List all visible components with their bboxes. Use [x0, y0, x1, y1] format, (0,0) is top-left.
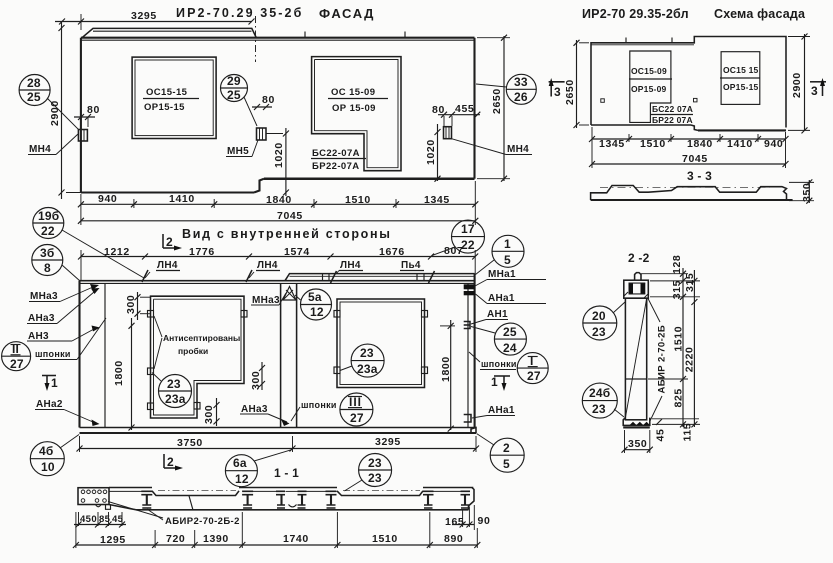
svg-text:25: 25	[27, 90, 41, 104]
svg-text:ОС15-15: ОС15-15	[146, 87, 188, 98]
svg-text:2220: 2220	[683, 347, 695, 373]
svg-text:1676: 1676	[379, 246, 405, 258]
svg-text:АБИР2-70-2Б-2: АБИР2-70-2Б-2	[165, 516, 240, 527]
svg-text:23: 23	[360, 346, 374, 360]
svg-text:ОР15-15: ОР15-15	[723, 82, 758, 92]
svg-text:27: 27	[10, 357, 24, 371]
svg-text:ОР 15-09: ОР 15-09	[332, 103, 376, 114]
svg-text:ОС 15-09: ОС 15-09	[331, 87, 375, 98]
svg-text:ЛН4: ЛН4	[340, 260, 361, 271]
svg-text:БР22-07А: БР22-07А	[312, 161, 360, 172]
svg-text:940: 940	[98, 193, 117, 205]
svg-text:2: 2	[167, 455, 174, 469]
svg-text:АНа1: АНа1	[488, 293, 515, 304]
svg-text:БС22 07А: БС22 07А	[652, 104, 693, 114]
svg-text:АНа3: АНа3	[28, 313, 55, 324]
svg-text:25: 25	[227, 88, 241, 102]
svg-text:2: 2	[503, 441, 510, 455]
svg-text:ЛН4: ЛН4	[157, 260, 178, 271]
svg-text:19б: 19б	[38, 209, 59, 223]
svg-text:ФАСАД: ФАСАД	[319, 6, 375, 21]
svg-text:23а: 23а	[165, 392, 186, 406]
svg-text:АНа1: АНа1	[488, 405, 515, 416]
svg-text:2900: 2900	[49, 100, 61, 126]
svg-text:12: 12	[310, 305, 324, 319]
svg-text:825: 825	[673, 388, 685, 407]
svg-text:1840: 1840	[687, 138, 713, 150]
svg-text:1574: 1574	[284, 246, 310, 258]
svg-text:90: 90	[478, 515, 491, 527]
svg-text:1: 1	[491, 375, 498, 389]
svg-text:ИР2-70.29 35-2б: ИР2-70.29 35-2б	[176, 6, 303, 20]
svg-text:3 - 3: 3 - 3	[687, 169, 712, 183]
svg-text:1800: 1800	[113, 360, 125, 386]
svg-text:7045: 7045	[682, 153, 708, 165]
svg-text:350: 350	[628, 438, 647, 450]
svg-text:ИР2-70 29.35-2бл: ИР2-70 29.35-2бл	[582, 7, 689, 21]
svg-text:455: 455	[455, 103, 474, 115]
svg-text:29: 29	[227, 74, 241, 88]
svg-text:2 -2: 2 -2	[628, 251, 650, 265]
svg-text:940: 940	[764, 138, 783, 150]
svg-text:300: 300	[125, 295, 137, 314]
svg-text:2650: 2650	[491, 88, 503, 114]
svg-text:АН1: АН1	[487, 309, 508, 320]
svg-text:10: 10	[41, 460, 55, 474]
svg-text:27: 27	[350, 411, 364, 425]
svg-text:2650: 2650	[564, 79, 576, 105]
svg-text:1740: 1740	[283, 533, 309, 545]
svg-text:шпонки: шпонки	[35, 349, 71, 359]
svg-text:1: 1	[51, 376, 58, 390]
svg-text:22: 22	[41, 224, 55, 238]
svg-text:300: 300	[250, 371, 262, 390]
svg-text:ЛН4: ЛН4	[257, 260, 278, 271]
svg-text:890: 890	[444, 533, 463, 545]
svg-text:3: 3	[554, 85, 561, 99]
svg-text:23: 23	[368, 471, 382, 485]
svg-text:25: 25	[503, 325, 517, 339]
svg-text:2: 2	[166, 235, 173, 249]
svg-text:БС22-07А: БС22-07А	[312, 148, 360, 159]
svg-text:АН3: АН3	[28, 331, 49, 342]
svg-text:Вид с внутренней стороны: Вид с внутренней стороны	[182, 227, 392, 241]
svg-text:45: 45	[655, 429, 667, 442]
svg-text:БР22 07А: БР22 07А	[652, 115, 693, 125]
svg-text:80: 80	[87, 104, 100, 116]
svg-text:1776: 1776	[189, 246, 215, 258]
svg-text:1020: 1020	[425, 139, 437, 165]
svg-text:ОР15-15: ОР15-15	[144, 102, 185, 113]
svg-text:пробки: пробки	[178, 346, 208, 356]
svg-text:МНа1: МНа1	[488, 269, 516, 280]
svg-text:315: 315	[684, 273, 696, 292]
svg-text:6а: 6а	[233, 456, 247, 470]
svg-text:АНа2: АНа2	[36, 399, 63, 410]
svg-text:720: 720	[166, 533, 185, 545]
svg-text:Схема фасада: Схема фасада	[714, 7, 806, 21]
svg-text:ОС15 15: ОС15 15	[723, 65, 758, 75]
svg-text:1345: 1345	[599, 138, 625, 150]
svg-text:22: 22	[461, 238, 475, 252]
svg-text:3б: 3б	[40, 246, 55, 260]
svg-text:1510: 1510	[345, 194, 371, 206]
svg-text:5: 5	[504, 253, 511, 267]
svg-text:17: 17	[461, 222, 475, 236]
svg-text:МН5: МН5	[227, 146, 249, 157]
svg-text:1410: 1410	[169, 193, 195, 205]
svg-text:1345: 1345	[424, 194, 450, 206]
svg-text:23: 23	[368, 456, 382, 470]
svg-text:1 - 1: 1 - 1	[274, 466, 299, 480]
svg-text:5а: 5а	[308, 290, 322, 304]
svg-text:III: III	[349, 395, 362, 409]
svg-text:23: 23	[592, 325, 606, 339]
svg-text:8: 8	[44, 261, 51, 275]
svg-text:7045: 7045	[277, 210, 303, 222]
svg-text:20: 20	[592, 309, 606, 323]
svg-text:24б: 24б	[589, 386, 610, 400]
svg-text:1410: 1410	[727, 138, 753, 150]
svg-text:3295: 3295	[131, 10, 157, 22]
svg-text:2900: 2900	[791, 72, 803, 98]
svg-text:450: 450	[80, 514, 97, 525]
svg-text:5: 5	[503, 457, 510, 471]
svg-text:МН4: МН4	[29, 144, 51, 155]
svg-text:шпонки: шпонки	[481, 359, 517, 369]
svg-text:24: 24	[503, 341, 517, 355]
svg-text:27: 27	[527, 369, 541, 383]
svg-text:МНа3: МНа3	[252, 295, 280, 306]
svg-text:28: 28	[27, 76, 41, 90]
svg-text:МНа3: МНа3	[30, 291, 58, 302]
svg-text:1510: 1510	[640, 138, 666, 150]
svg-text:ОР15-09: ОР15-09	[631, 84, 666, 94]
svg-text:26: 26	[514, 90, 528, 104]
svg-text:1212: 1212	[104, 246, 130, 258]
svg-text:Антисептированы: Антисептированы	[163, 333, 240, 343]
svg-text:1: 1	[504, 237, 511, 251]
svg-text:ОС15-09: ОС15-09	[631, 66, 667, 76]
svg-text:23: 23	[592, 402, 606, 416]
svg-text:1295: 1295	[100, 534, 126, 546]
svg-text:АНа3: АНа3	[241, 404, 268, 415]
svg-text:315: 315	[671, 280, 683, 299]
svg-text:1510: 1510	[372, 533, 398, 545]
svg-text:128: 128	[671, 255, 683, 274]
svg-text:3750: 3750	[177, 437, 203, 449]
svg-text:1020: 1020	[273, 142, 285, 168]
svg-text:3: 3	[811, 84, 818, 98]
svg-text:23: 23	[167, 377, 181, 391]
svg-text:1390: 1390	[203, 533, 229, 545]
svg-text:23а: 23а	[357, 362, 378, 376]
svg-text:шпонки: шпонки	[301, 400, 337, 410]
svg-text:Пь4: Пь4	[401, 260, 421, 271]
svg-text:33: 33	[514, 75, 528, 89]
svg-text:3295: 3295	[375, 436, 401, 448]
svg-text:12: 12	[235, 472, 249, 486]
svg-text:АБИР 2-70-2Б: АБИР 2-70-2Б	[657, 325, 668, 394]
svg-text:МН4: МН4	[507, 144, 529, 155]
svg-text:115: 115	[682, 423, 694, 442]
svg-text:1840: 1840	[266, 194, 292, 206]
svg-text:4б: 4б	[39, 444, 54, 458]
